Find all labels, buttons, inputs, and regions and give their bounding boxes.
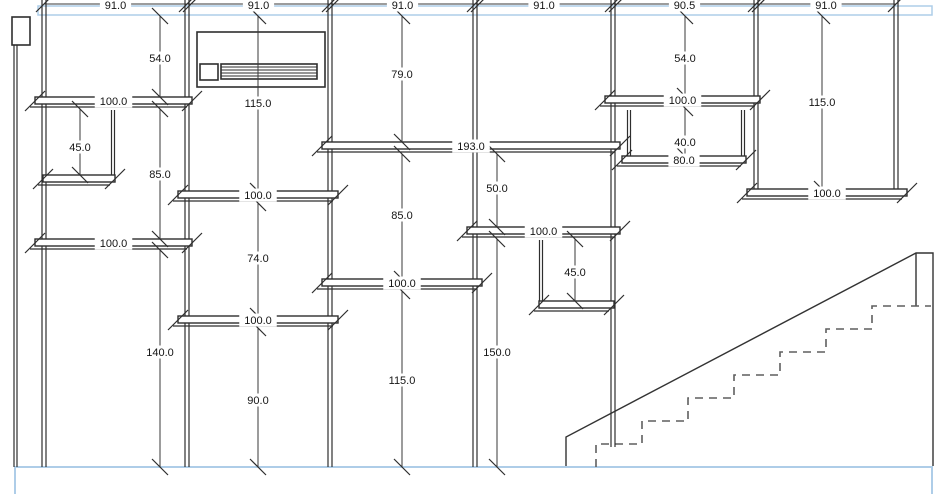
dimension-label: 90.5 [674,0,695,12]
dimension-label: 79.0 [391,69,412,81]
dimension-label: 40.0 [674,137,695,149]
dimension-label: 91.0 [392,0,413,12]
dimension-label: 54.0 [149,53,170,65]
dimension-label: 100.0 [244,315,272,327]
dimension-label: 115.0 [389,375,416,387]
dimension-label: 115.0 [809,97,836,109]
framing-elevation-canvas[interactable]: 91.091.091.091.090.591.0100.0100.0100.01… [0,0,950,494]
dimension-label: 54.0 [674,53,695,65]
dimension-label: 100.0 [388,278,416,290]
dimension-label: 100.0 [100,238,128,250]
dimension-label: 91.0 [248,0,269,12]
corner-box-outline [12,17,30,45]
dimension-label: 91.0 [815,0,836,12]
stair-steps-dashed [596,306,931,467]
dimension-label: 100.0 [100,96,128,108]
dimension-label: 100.0 [813,188,841,200]
dimension-label: 80.0 [673,155,694,167]
dimension-label: 100.0 [244,190,272,202]
dimension-label: 91.0 [105,0,126,12]
dimension-label: 100.0 [669,95,697,107]
dimension-label: 140.0 [146,347,174,359]
dimension-label: 45.0 [564,267,585,279]
dimension-label: 150.0 [483,347,511,359]
dimension-label: 90.0 [247,395,268,407]
dimension-label: 45.0 [69,142,90,154]
dimension-label: 74.0 [247,253,268,265]
top-plate-highlight [38,6,932,15]
vent-grille [221,64,317,79]
stair-stringer-outline [566,253,933,466]
bottom-plate-highlight [15,467,932,494]
staircase[interactable] [566,253,933,467]
vent-unit[interactable] [197,32,325,87]
vent-panel [200,64,218,80]
framing-elevation-drawing[interactable]: 91.091.091.091.090.591.0100.0100.0100.01… [0,0,950,494]
dimension-label: 115.0 [245,98,272,110]
dimension-label: 100.0 [530,226,558,238]
sills-and-headers[interactable] [25,90,917,330]
dimension-label: 85.0 [149,169,170,181]
dimension-label: 193.0 [457,141,485,153]
dimension-labels: 91.091.091.091.090.591.0100.0100.0100.01… [64,0,845,407]
sill-bar [43,175,115,182]
dimension-label: 85.0 [391,210,412,222]
corner-box[interactable] [12,17,30,45]
dimension-label: 91.0 [533,0,554,12]
dimension-label: 50.0 [486,183,507,195]
studs[interactable] [14,0,898,467]
